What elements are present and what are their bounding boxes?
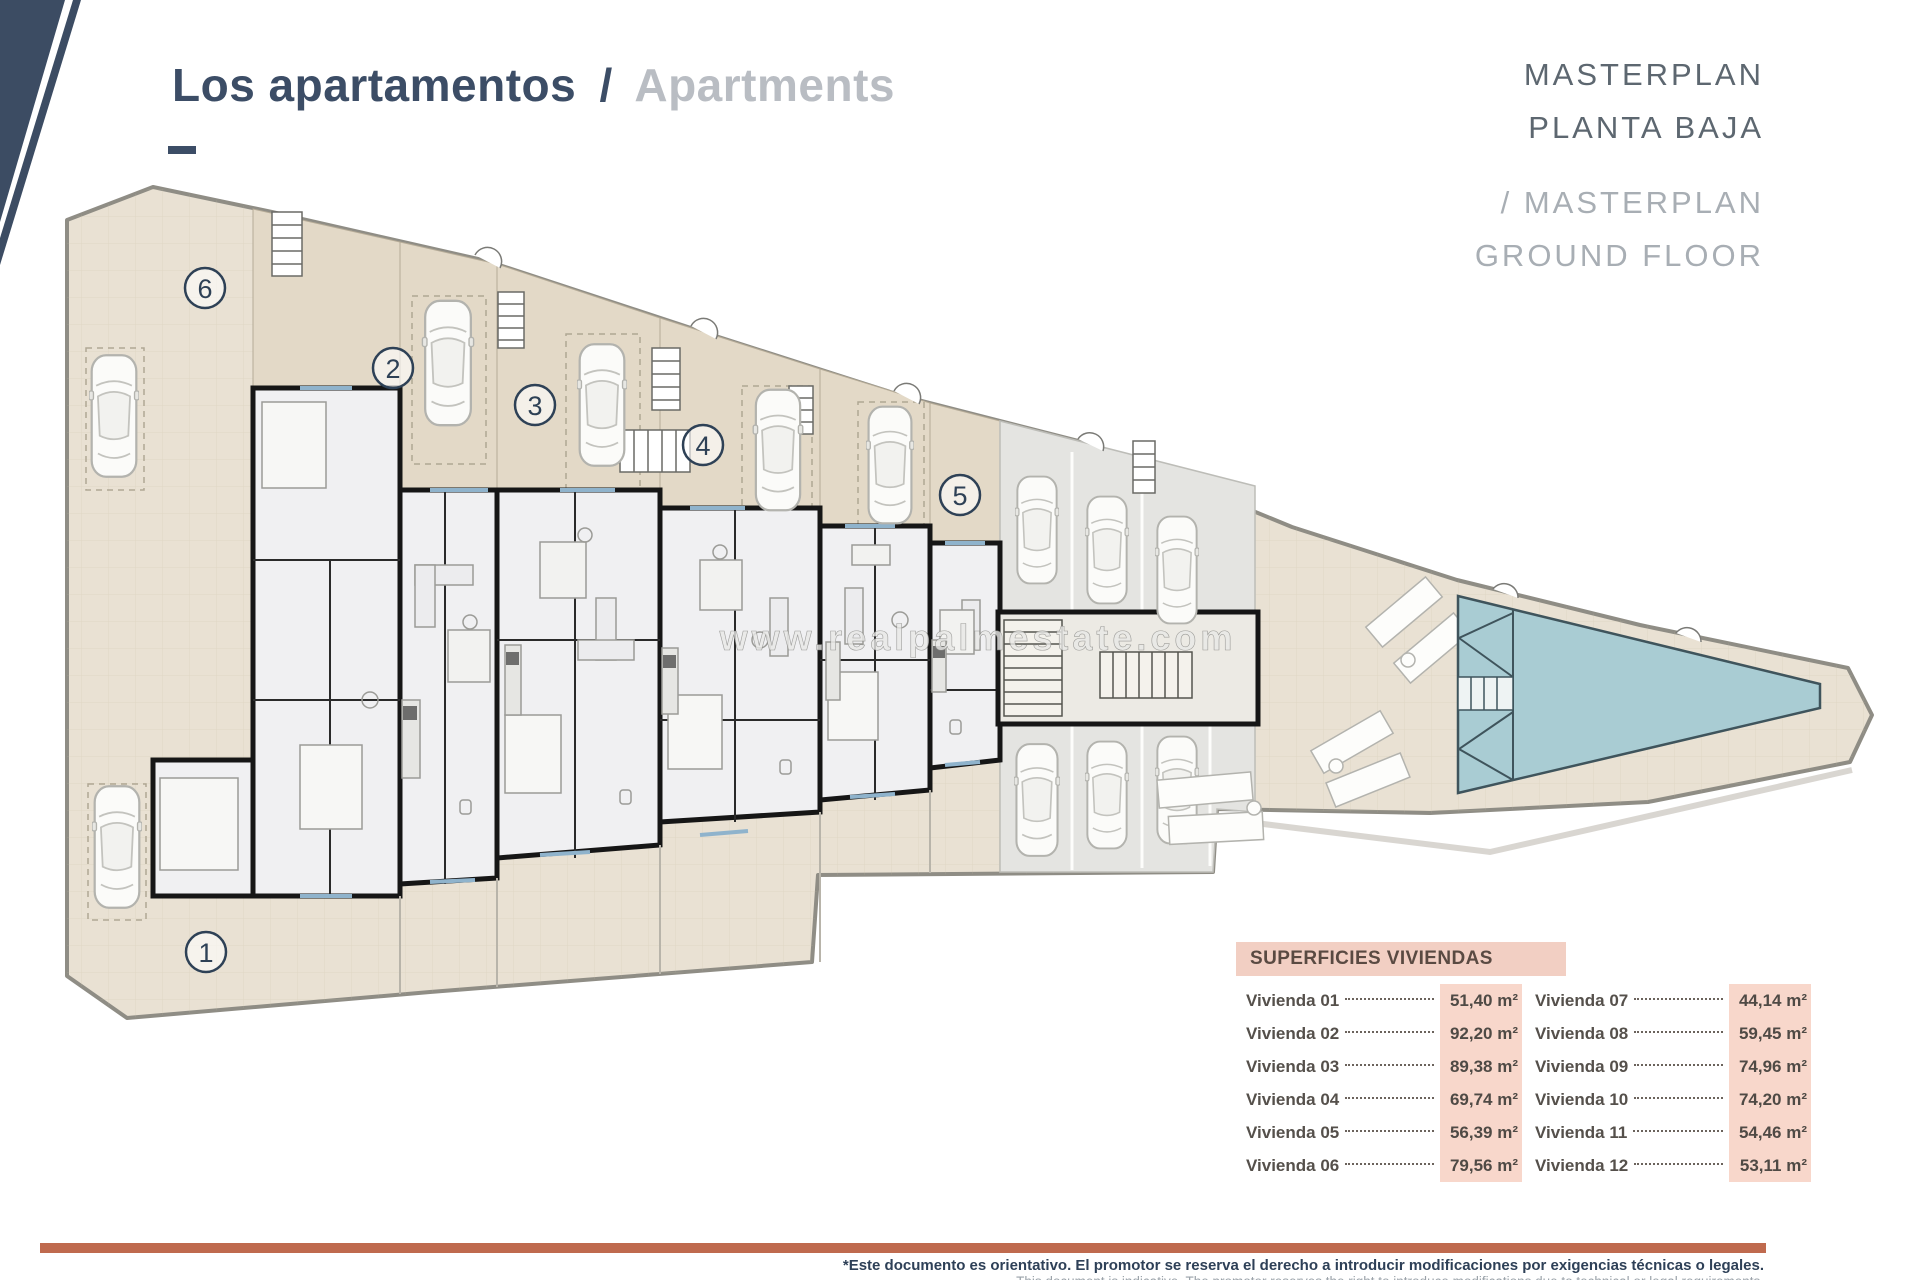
area-row: Vivienda 0556,39 m² [1246,1116,1522,1149]
area-value: 92,20 m² [1440,1017,1522,1050]
brochure-page: Los apartamentos / Apartments MASTERPLAN… [0,0,1920,1280]
areas-table-title: SUPERFICIES VIVIENDAS [1236,948,1493,970]
area-value: 51,40 m² [1440,984,1522,1017]
area-row: Vivienda 0744,14 m² [1535,984,1811,1017]
disclaimer-spanish: *Este documento es orientativo. El promo… [364,1257,1764,1274]
area-row: Vivienda 1253,11 m² [1535,1149,1811,1182]
area-value: 69,74 m² [1440,1083,1522,1116]
svg-text:1: 1 [198,938,213,968]
svg-text:5: 5 [952,481,967,511]
area-value: 54,46 m² [1729,1116,1811,1149]
area-row: Vivienda 0389,38 m² [1246,1050,1522,1083]
area-row: Vivienda 0469,74 m² [1246,1083,1522,1116]
car-icon [1014,744,1060,856]
svg-text:4: 4 [695,431,710,461]
car-icon [753,390,803,510]
area-value: 53,11 m² [1729,1149,1811,1182]
areas-column-right: Vivienda 0744,14 m² Vivienda 0859,45 m² … [1535,984,1811,1182]
unit-badge-6: 6 [185,268,225,308]
unit-badge-4: 4 [683,425,723,465]
car-icon [1085,497,1129,604]
footer-accent-bar [40,1243,1766,1253]
areas-table: SUPERFICIES VIVIENDAS Vivienda 0151,40 m… [1236,942,1811,1182]
area-value: 56,39 m² [1440,1116,1522,1149]
area-row: Vivienda 0151,40 m² [1246,984,1522,1017]
car-icon [92,786,142,907]
car-icon [1015,477,1059,584]
unit-badge-1: 1 [186,932,226,972]
area-value: 74,20 m² [1729,1083,1811,1116]
watermark: www.realpalmestate.com [719,617,1237,658]
car-icon [1085,742,1129,849]
area-value: 89,38 m² [1440,1050,1522,1083]
area-row: Vivienda 0679,56 m² [1246,1149,1522,1182]
svg-text:2: 2 [385,354,400,384]
areas-table-header: SUPERFICIES VIVIENDAS [1236,942,1566,976]
car-icon [866,407,914,524]
car-icon [89,355,139,476]
area-row: Vivienda 1154,46 m² [1535,1116,1811,1149]
svg-text:6: 6 [197,274,212,304]
unit-badge-3: 3 [515,385,555,425]
area-value: 79,56 m² [1440,1149,1522,1182]
area-value: 74,96 m² [1729,1050,1811,1083]
area-row: Vivienda 0859,45 m² [1535,1017,1811,1050]
unit-badge-2: 2 [373,348,413,388]
area-value: 59,45 m² [1729,1017,1811,1050]
car-icon [1155,517,1199,624]
unit-badge-5: 5 [940,475,980,515]
area-value: 44,14 m² [1729,984,1811,1017]
pool-ladder [1458,677,1513,710]
car-icon [577,344,627,465]
areas-column-left: Vivienda 0151,40 m² Vivienda 0292,20 m² … [1246,984,1522,1182]
footer-disclaimer: *Este documento es orientativo. El promo… [364,1257,1764,1280]
car-icon [422,301,473,425]
area-row: Vivienda 0974,96 m² [1535,1050,1811,1083]
disclaimer-english: This document is indicative. The promote… [364,1274,1764,1280]
svg-text:3: 3 [527,391,542,421]
area-row: Vivienda 1074,20 m² [1535,1083,1811,1116]
area-row: Vivienda 0292,20 m² [1246,1017,1522,1050]
